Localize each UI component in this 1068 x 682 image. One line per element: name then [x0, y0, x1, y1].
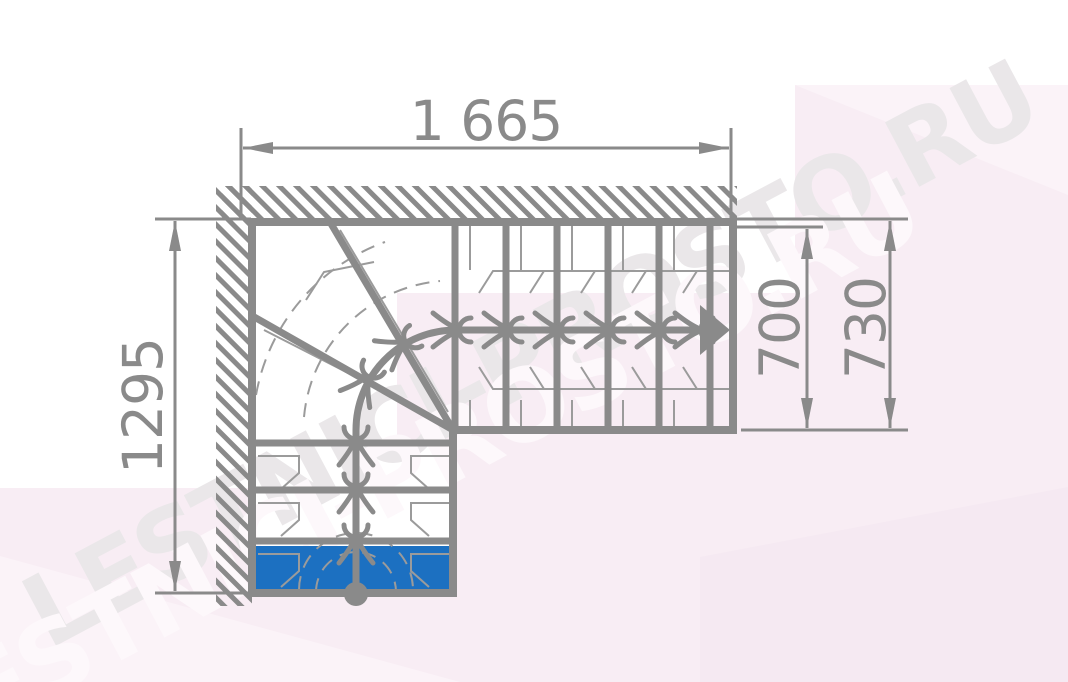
- walkline-start-circle-icon: [344, 582, 368, 606]
- dimension-label-total-width: 1295: [111, 338, 175, 474]
- top-wall-hatch: [222, 186, 737, 219]
- staircase-plan-drawing: LESTNICI-PROSTO.RU LESTNICI-PROSTO.RU: [0, 0, 1068, 682]
- dimension-label-flight-width-outer: 730: [834, 277, 898, 379]
- dimension-label-flight-width-inner: 700: [748, 277, 812, 379]
- left-wall-hatch: [216, 186, 252, 606]
- dimension-label-total-run: 1 665: [410, 89, 562, 153]
- staircase-plan-screenshot: LESTNICI-PROSTO.RU LESTNICI-PROSTO.RU: [0, 0, 1068, 682]
